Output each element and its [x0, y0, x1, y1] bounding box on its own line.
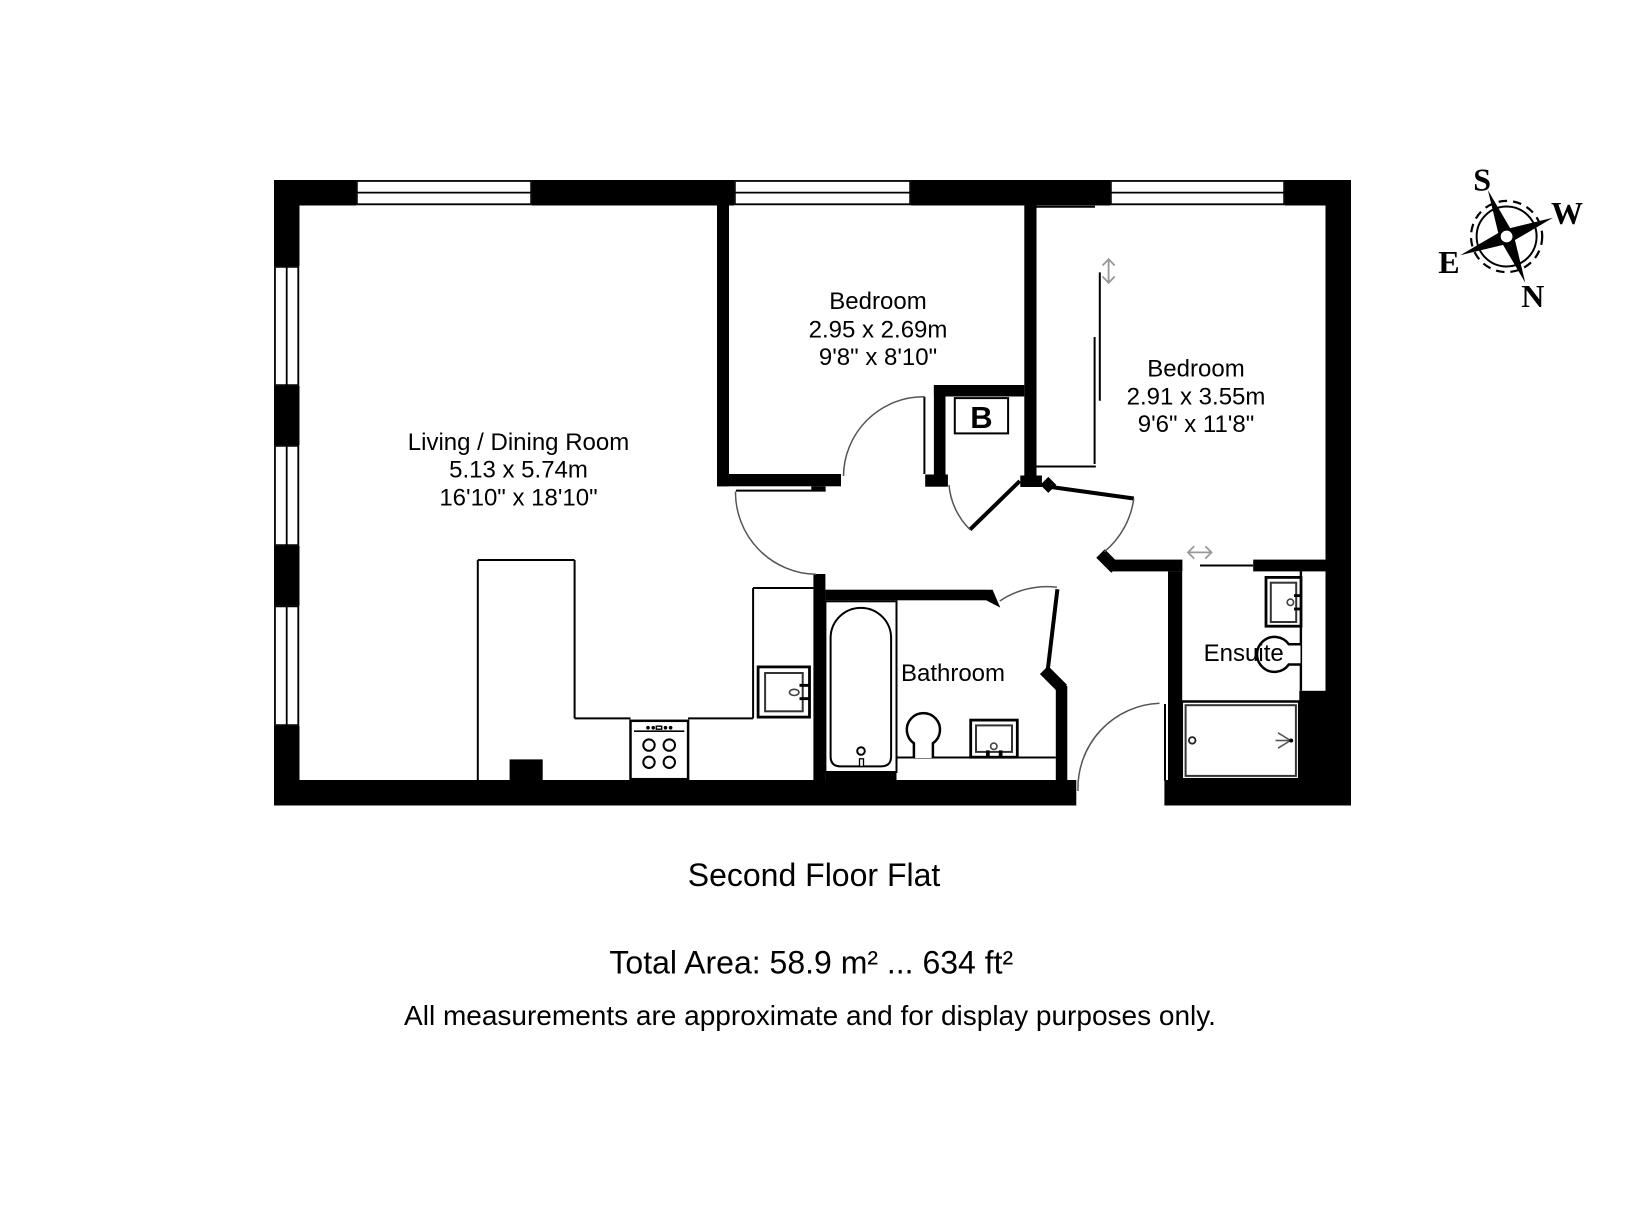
svg-text:N: N — [1521, 278, 1544, 314]
svg-text:Second Floor Flat: Second Floor Flat — [688, 857, 941, 893]
svg-text:E: E — [1438, 244, 1459, 280]
svg-text:Total Area: 58.9 m² ... 634 ft: Total Area: 58.9 m² ... 634 ft² — [609, 945, 1013, 981]
svg-text:5.13 x 5.74m: 5.13 x 5.74m — [449, 457, 588, 484]
svg-text:Bathroom: Bathroom — [901, 660, 1005, 687]
svg-text:9'6" x 11'8": 9'6" x 11'8" — [1138, 411, 1255, 438]
svg-text:Bedroom: Bedroom — [829, 288, 926, 315]
svg-text:S: S — [1473, 162, 1491, 198]
svg-text:W: W — [1551, 195, 1583, 231]
svg-text:Bedroom: Bedroom — [1147, 356, 1244, 383]
svg-text:2.91 x 3.55m: 2.91 x 3.55m — [1127, 383, 1266, 410]
svg-text:Living / Dining Room: Living / Dining Room — [408, 429, 629, 456]
svg-text:Ensuite: Ensuite — [1204, 640, 1284, 667]
svg-text:9'8" x 8'10": 9'8" x 8'10" — [819, 344, 937, 371]
svg-text:B: B — [970, 400, 992, 435]
svg-text:16'10" x 18'10": 16'10" x 18'10" — [439, 485, 597, 512]
svg-text:2.95 x 2.69m: 2.95 x 2.69m — [809, 316, 948, 343]
svg-text:All measurements are approxima: All measurements are approximate and for… — [404, 1000, 1216, 1031]
